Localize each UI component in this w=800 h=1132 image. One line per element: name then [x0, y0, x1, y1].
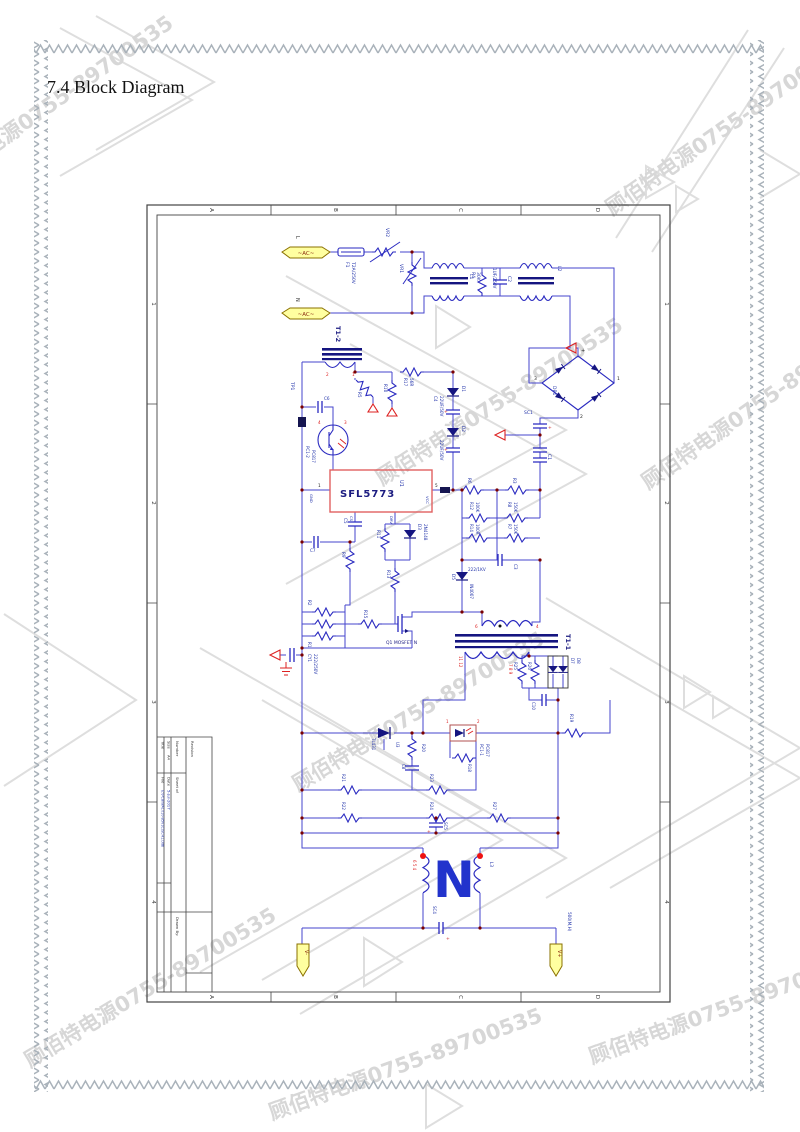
d7-label: D7 — [570, 658, 575, 664]
c5-body — [348, 522, 362, 526]
watermark-triangle — [364, 938, 402, 986]
tb-size-value: A4 — [167, 755, 172, 761]
watermark-triangle — [436, 306, 470, 348]
c4-body — [446, 410, 460, 414]
junction-dots — [300, 250, 559, 929]
zone-row: 3 — [663, 700, 669, 704]
ac-label: ~AC~ — [298, 312, 315, 318]
vplus-label: V+ — [556, 950, 562, 958]
tb-sheet-label: Sheet of — [175, 777, 180, 794]
u1-pin5: 5 — [435, 483, 438, 488]
zone-col: A — [208, 995, 214, 999]
u1-vcc: VCC — [425, 496, 430, 504]
watermark-text: 顾佰特电源0755-89700535 — [266, 1003, 546, 1124]
hv-divider: R12 100K R8 150K R14 100R R7 150K 222/1K… — [451, 502, 528, 599]
watermark-triangle — [610, 668, 800, 888]
zone-col: B — [332, 995, 338, 999]
t11-pin6: 6 — [475, 624, 478, 629]
schematic-canvas: 顾佰特电源0755-89700535 顾佰特电源0755-89700535 顾佰… — [0, 0, 800, 1132]
zone-row: 1 — [663, 302, 669, 306]
d3-value: 2N4148 — [423, 524, 428, 541]
ac-label: ~AC~ — [298, 251, 315, 257]
r17-label: R17 — [403, 378, 408, 387]
d5-body — [456, 572, 468, 580]
watermark-text: 顾佰特电源0755-89700535 — [0, 11, 178, 196]
tb-file-label: File — [161, 777, 166, 784]
zigzag-border — [34, 40, 764, 1092]
r15-body — [358, 620, 382, 628]
sc4-label: SC4 — [432, 906, 437, 914]
r5-label: R5 — [357, 392, 362, 398]
r7-value: 150K — [513, 524, 518, 535]
r21-body — [338, 786, 362, 794]
fuse-value: T2A/250V — [350, 261, 356, 285]
r17-body — [400, 368, 424, 376]
r25-label: R25 — [513, 662, 518, 670]
tb-date-value: 5-Jul-2017 — [167, 790, 172, 810]
t11-label: T1-1 — [564, 634, 572, 651]
d8-label: D8 — [576, 658, 581, 664]
zone-row: 4 — [663, 900, 669, 904]
mosfet-q1: Q1 MOSFET N — [386, 614, 417, 646]
r27-body — [487, 814, 511, 822]
r1-label: R1 — [307, 642, 312, 648]
zone-row: 4 — [150, 900, 156, 904]
q1-label: Q1 MOSFET N — [386, 640, 417, 646]
u1-label: U1 — [398, 480, 404, 487]
page-title: 7.4 Block Diagram — [47, 77, 184, 97]
vminus-label: V- — [303, 950, 309, 955]
c5-label: C5 — [343, 518, 348, 524]
r18-body — [452, 754, 476, 762]
c1-label: C1 — [546, 454, 552, 460]
r15-label: R15 — [363, 610, 368, 619]
zone-col: A — [208, 208, 214, 212]
l2-label: L2 — [556, 266, 562, 272]
pc11-pin1: 1 — [446, 719, 449, 724]
vr2-label: VR2 — [384, 228, 390, 237]
r3-body — [505, 486, 529, 494]
tb-title-label: Title — [161, 740, 166, 750]
r22-body — [338, 814, 362, 822]
c6-label: C6 — [324, 396, 330, 401]
plus-label: + — [548, 425, 552, 431]
net-flag-icon — [270, 650, 280, 660]
r4-value: 30K — [475, 272, 481, 282]
zone-row: 2 — [663, 501, 669, 505]
r3-label: R3 — [512, 478, 517, 484]
d3-body — [404, 530, 416, 538]
circuit: ~AC~ ~AC~ L N F1 T2A/250V VR2 VR1 L1 R4 … — [270, 228, 620, 976]
pc11-part: PC817 — [485, 744, 490, 757]
net-flag-icon — [368, 404, 378, 412]
d2-label: D2 — [461, 426, 466, 432]
tb-number-label: Number — [175, 741, 180, 757]
sc4-plus: + — [446, 936, 450, 942]
sc5-label: SC5 — [443, 822, 448, 830]
watermark-text: 顾佰特电源0755-89700535 — [637, 309, 800, 494]
r2-label: R2 — [307, 600, 312, 606]
watermark-triangle — [760, 150, 800, 198]
r5-body — [353, 377, 376, 400]
plus-label: + — [427, 829, 431, 835]
vr2-body — [372, 248, 396, 256]
tb-size-label: Size — [167, 741, 172, 749]
r23-label: R23 — [429, 774, 434, 782]
input-filter: F1 T2A/250V VR2 VR1 L1 R4 30K 1UF/250V C… — [338, 228, 562, 301]
vr1-body — [408, 262, 416, 286]
tp1-marker — [298, 417, 306, 427]
u1-drv: DRV — [389, 516, 394, 524]
r18-label: R18 — [467, 764, 472, 772]
cy1-label: CY1 — [307, 654, 312, 662]
c10-label: C10 — [531, 702, 536, 710]
r17-value: 56R — [409, 378, 414, 386]
ycap-cy1: CY1 222/250V — [270, 648, 318, 675]
pc12-pin4: 4 — [318, 420, 321, 425]
net-flag-icon — [387, 408, 397, 416]
r8-value: 150K — [513, 502, 518, 513]
db1-label: DB1 — [551, 386, 557, 396]
c4-label: C4 — [433, 396, 438, 402]
u1-part: SFL5773 — [340, 489, 395, 500]
cy1-value: 222/250V — [313, 654, 318, 674]
zone-col: D — [594, 995, 600, 999]
tb-file-value: E:\PCB\WA1010-B5V1C\SCH1.Ddb — [161, 790, 165, 847]
zone-col: C — [457, 995, 463, 999]
r13-label: R13 — [386, 570, 391, 579]
tp1-label: TP1 — [289, 381, 295, 390]
zone-row: 2 — [150, 501, 156, 505]
r10-label: R10 — [383, 384, 388, 393]
secondary-rectifier: R25 R26 D7 D8 C10 R19 — [513, 656, 586, 737]
c2-label: C2 — [506, 276, 512, 282]
l3-label: L3 — [489, 862, 494, 867]
db1-pin3: 3 — [534, 376, 537, 382]
vr1-label: VR1 — [398, 264, 404, 273]
line-label: L — [294, 236, 300, 239]
d3-label: D3 — [417, 524, 422, 530]
c3-value: 222/1KV — [468, 567, 486, 572]
d8-body — [558, 666, 568, 672]
d7-body — [548, 666, 558, 672]
d5-value: IN4007 — [469, 584, 474, 599]
r19-label: R19 — [569, 714, 574, 723]
plus-label: + — [444, 447, 448, 453]
net-flag-icon — [495, 430, 505, 440]
r6-label: R6 — [467, 478, 472, 484]
vplus-connector — [550, 944, 562, 976]
c2-value: 1UF/250V — [492, 268, 497, 289]
out-note: 500(M,H) — [567, 912, 572, 932]
c6-body — [318, 401, 322, 413]
zone-row: 3 — [150, 700, 156, 704]
t11-pin4: 4 — [536, 624, 539, 629]
big-n: N — [433, 851, 475, 909]
pc12-part: PC817 — [311, 450, 316, 463]
c8-label: C8 — [401, 764, 406, 770]
r9-label: R9 — [341, 552, 346, 558]
r24-body — [426, 814, 450, 822]
r9-body — [346, 548, 354, 572]
u1-cs: CS — [349, 516, 354, 522]
c10-body — [542, 694, 546, 706]
watermark-triangles — [4, 16, 800, 1128]
r22-label: R22 — [341, 802, 346, 810]
zone-col: C — [457, 208, 463, 212]
neutral-label: N — [294, 298, 300, 302]
zone-col: D — [594, 208, 600, 212]
c4b-body — [446, 448, 460, 452]
r26-label: R26 — [527, 662, 532, 670]
d1-label: D1 — [461, 386, 466, 392]
u1-gnd: GND — [309, 494, 314, 503]
r2-body — [312, 608, 336, 616]
db1-pin2: 2 — [580, 414, 583, 420]
c3-body — [498, 554, 502, 566]
u1-pin1: 1 — [318, 483, 321, 488]
t11-pins-b: 7 8 9 — [508, 664, 513, 675]
r8-label: R8 — [507, 502, 512, 508]
db1-pin1: 1 — [617, 376, 620, 382]
fuse-label: F1 — [344, 262, 350, 268]
tb-revision-label: Revision — [190, 741, 195, 757]
controller-u1: SFL5773 U1 GND VCC CS DRV 1 5 R6 R3 — [309, 470, 529, 524]
zone-col: B — [332, 208, 338, 212]
tl431-label: TL431 — [371, 737, 376, 751]
r27-label: R27 — [492, 802, 497, 810]
watermark-text: 顾佰特电源0755-89700535 — [586, 947, 800, 1068]
t11-pins-a: 11 12 — [458, 656, 463, 668]
watermark-triangle — [4, 614, 136, 786]
r1-body — [312, 632, 336, 640]
r14-label: R14 — [469, 524, 474, 532]
pc11-pin2: 2 — [477, 719, 480, 724]
r10-body — [388, 380, 396, 404]
winding-pins: 6 5 4 — [412, 860, 417, 871]
sheet-frame — [147, 205, 670, 1002]
d5-label: D5 — [451, 574, 456, 580]
sc5-body — [429, 823, 443, 827]
c7-body — [314, 536, 318, 548]
output-stage: 6 5 4 L3 N SC4 + 500(M,H) V- V+ — [297, 851, 572, 976]
polarity-dot — [420, 853, 426, 859]
r12-label: R12 — [469, 502, 474, 510]
aux-transformer: T1-2 2 1 TP1 C6 4 3 PC1-2 PC817 — [289, 326, 362, 463]
jumper-marker — [440, 487, 450, 493]
r14-value: 100R — [475, 524, 480, 535]
r20-body — [408, 736, 416, 760]
pc12-label: PC1-2 — [305, 446, 310, 458]
r24-label: R24 — [429, 802, 434, 810]
c7-label: C7 — [310, 548, 316, 553]
c3-label: C3 — [513, 564, 518, 570]
earth-icon — [280, 662, 292, 675]
t12-pin2: 2 — [326, 372, 329, 377]
watermark-layer: 顾佰特电源0755-89700535 顾佰特电源0755-89700535 顾佰… — [0, 11, 800, 1128]
c1-body — [533, 458, 547, 462]
plus-label: + — [581, 348, 585, 354]
drive-network: C5 C7 R9 R11 D3 2N4148 R13 R15 R2 R1 — [307, 518, 428, 648]
pc11-label: PC1-1 — [479, 744, 484, 756]
r21-label: R21 — [341, 774, 346, 782]
tb-date-label: Date — [167, 777, 172, 787]
r20-label: R20 — [421, 744, 426, 752]
u3-label: U3 — [395, 742, 400, 748]
polarity-dot — [477, 853, 483, 859]
tb-drawn-label: Drawn By: — [175, 917, 180, 936]
pc12-pin3: 3 — [344, 420, 347, 425]
d1-body — [447, 388, 459, 396]
t12-label: T1-2 — [334, 326, 342, 342]
plus-label: + — [444, 409, 448, 415]
document-page: 顾佰特电源0755-89700535 顾佰特电源0755-89700535 顾佰… — [0, 0, 800, 1132]
zone-row: 1 — [150, 302, 156, 306]
r12-value: 100K — [475, 502, 480, 513]
r19-body — [562, 729, 586, 737]
r7-label: R7 — [507, 524, 512, 530]
r11-label: R11 — [376, 530, 381, 539]
vminus-connector — [297, 944, 309, 976]
sc1-label: SC1 — [524, 410, 533, 416]
watermark-text: 顾佰特电源0755-89700535 — [20, 903, 280, 1072]
